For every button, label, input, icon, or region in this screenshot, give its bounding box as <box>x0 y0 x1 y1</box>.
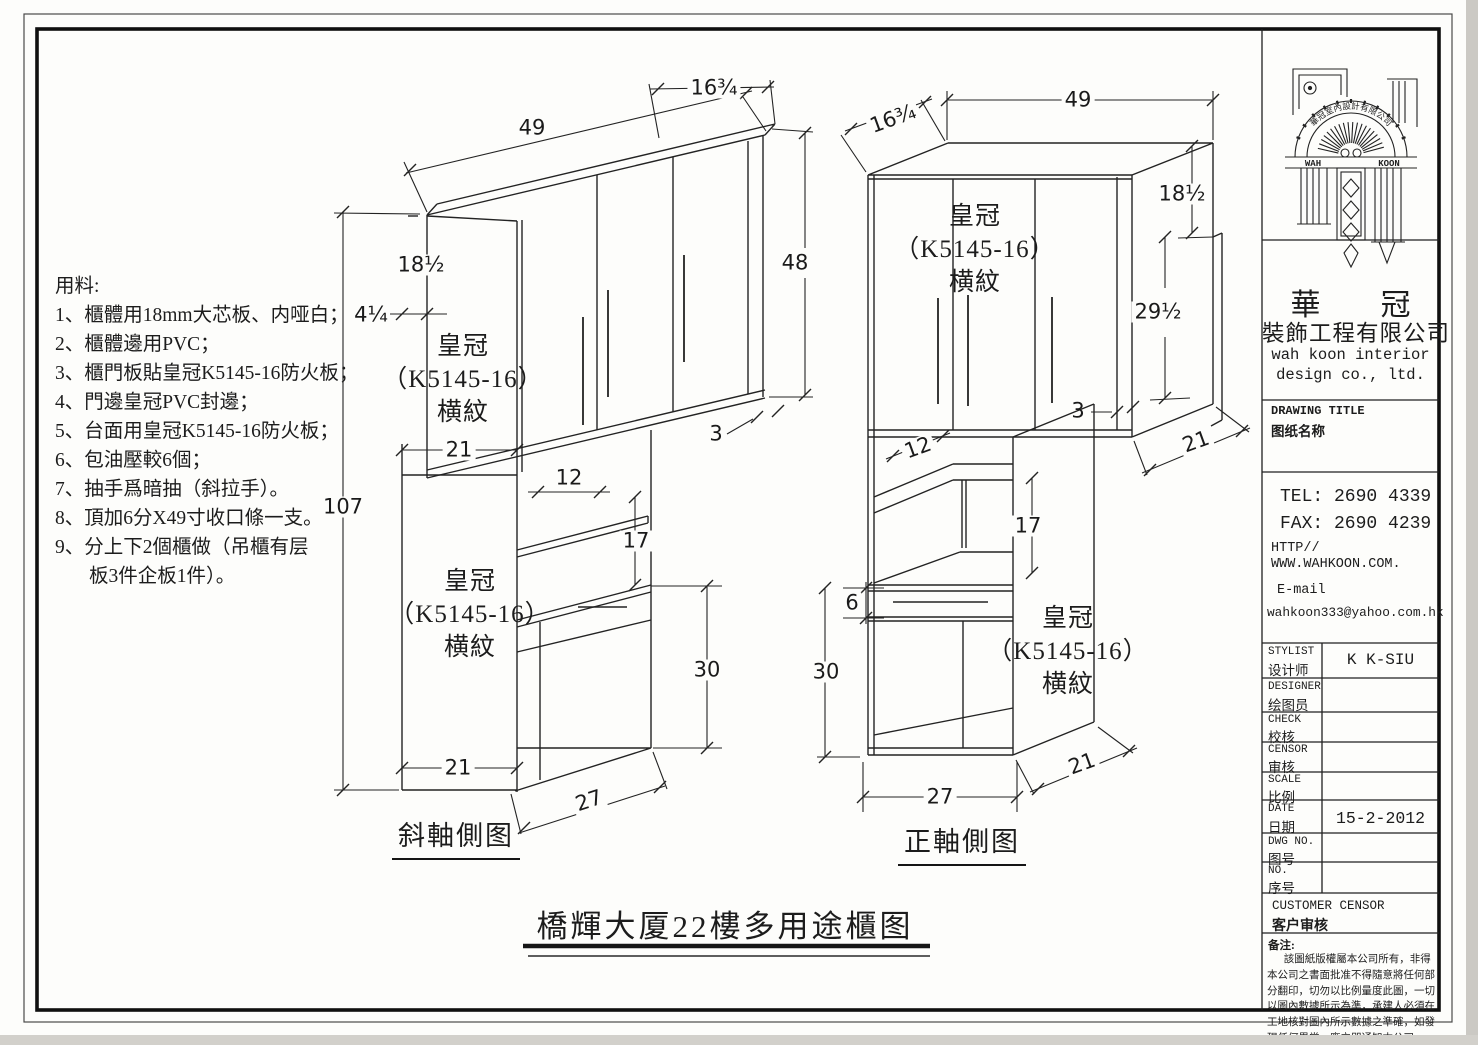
right-view-title: 正軸側图 <box>898 820 1026 866</box>
company-name-en-1: wah koon interior <box>1262 346 1439 364</box>
notes-body: 該圖紙版權屬本公司所有，非得本公司之書面批准不得隨意將任何部分翻印，切勿以比例量… <box>1267 952 1435 1045</box>
materials-item: 7、抽手爲暗抽（斜拉手）。 <box>55 475 358 504</box>
materials-item: 6、包油壓較6個； <box>55 446 358 475</box>
row-label-en: CHECK <box>1268 714 1301 726</box>
panel-label-right-upper: 皇冠 （K5145-16） 横紋 <box>894 200 1055 299</box>
panel-grain: 横紋 <box>894 266 1055 299</box>
row-label-en: DWG NO. <box>1268 836 1314 848</box>
dim-left-width: 49 <box>519 118 546 139</box>
fax-number: FAX: 2690 4239 <box>1280 514 1431 534</box>
materials-item: 9、分上下2個櫃做（吊櫃有层 <box>55 533 358 562</box>
dim-right-upper-step: 18½ <box>1155 184 1208 205</box>
dim-left-shelf-depth: 12 <box>556 468 583 489</box>
logo-koon-text: KOON <box>1378 159 1400 169</box>
logo-door <box>1337 168 1365 267</box>
panel-brand: 皇冠 <box>389 565 550 598</box>
left-view-dimensions <box>334 80 813 834</box>
panel-code: （K5145-16） <box>382 363 543 396</box>
row-label-en: STYLIST <box>1268 646 1314 658</box>
row-label-cn: 绘图员 <box>1268 694 1309 714</box>
dim-left-depth-top: 16¾ <box>687 78 740 99</box>
dim-right-stile: 3 <box>1071 401 1084 422</box>
left-view-title: 斜軸側图 <box>392 814 520 860</box>
drawing-sheet: WAH KOON 華冠室內設計有限公司 <box>0 0 1478 1045</box>
panel-label-left-upper: 皇冠 （K5145-16） 横紋 <box>382 330 543 429</box>
http-label: HTTP// <box>1271 541 1320 556</box>
scan-edge <box>1466 0 1478 1045</box>
dim-left-offset: 4¼ <box>354 305 388 326</box>
sheet-title-underline <box>523 946 930 956</box>
logo-fan-icon <box>1318 122 1384 153</box>
website-url: WWW.WAHKOON.COM. <box>1271 557 1401 572</box>
dim-left-recess-height: 17 <box>620 531 653 552</box>
panel-code: （K5145-16） <box>389 598 550 631</box>
panel-label-left-lower: 皇冠 （K5145-16） 横紋 <box>389 565 550 664</box>
dim-right-recess-height: 17 <box>1012 516 1045 537</box>
materials-item: 板3件企板1件）。 <box>55 562 358 591</box>
logo-arc-text: 華冠室內設計有限公司 <box>1308 101 1394 128</box>
panel-grain: 横紋 <box>987 668 1148 701</box>
materials-item: 5、台面用皇冠K5145-16防火板； <box>55 417 358 446</box>
panel-code: （K5145-16） <box>987 635 1148 668</box>
panel-brand: 皇冠 <box>894 200 1055 233</box>
logo-wah-text: WAH <box>1305 159 1321 169</box>
logo-columns <box>1297 168 1405 263</box>
email-address: wahkoon333@yahoo.com.hk <box>1267 605 1444 620</box>
row-label-en: SCALE <box>1268 774 1301 786</box>
materials-heading: 用料: <box>55 272 358 301</box>
drawing-title-label-en: DRAWING TITLE <box>1271 404 1365 418</box>
materials-list: 用料: 1、櫃體用18mm大芯板、内哑白； 2、櫃體邊用PVC； 3、櫃門板貼皇… <box>55 272 358 591</box>
materials-item: 3、櫃門板貼皇冠K5145-16防火板； <box>55 359 358 388</box>
panel-label-right-lower: 皇冠 （K5145-16） 横紋 <box>987 602 1148 701</box>
company-name-cn-sub: 裝飾工程有限公司 <box>1262 316 1439 348</box>
dim-right-lower-step: 29½ <box>1131 302 1184 323</box>
dim-right-base-height: 30 <box>810 662 843 683</box>
materials-item: 4、門邊皇冠PVC封邊； <box>55 388 358 417</box>
email-label: E-mail <box>1277 583 1326 598</box>
customer-censor-label-en: CUSTOMER CENSOR <box>1272 899 1385 913</box>
dim-left-base-height: 30 <box>691 660 724 681</box>
dim-left-total-height: 107 <box>320 497 366 518</box>
materials-item: 2、櫃體邊用PVC； <box>55 330 358 359</box>
row-label-cn: 审核 <box>1268 756 1295 776</box>
row-label-cn: 序号 <box>1268 877 1295 897</box>
drawing-title-label-cn: 图纸名称 <box>1271 420 1325 440</box>
row-label-en: DESIGNER <box>1268 681 1321 693</box>
panel-grain: 横紋 <box>389 631 550 664</box>
dim-right-drawer-height: 6 <box>842 593 861 614</box>
stylist-value: K K-SIU <box>1322 651 1439 669</box>
dim-left-upper-step: 18½ <box>394 255 447 276</box>
materials-item: 8、頂加6分X49寸收口條一支。 <box>55 504 358 533</box>
row-label-cn: 日期 <box>1268 816 1295 836</box>
dim-left-stile: 3 <box>709 424 722 445</box>
logo-arc-textpath: 華冠室內設計有限公司 <box>1308 101 1394 128</box>
scan-edge <box>0 1035 1478 1045</box>
panel-code: （K5145-16） <box>894 233 1055 266</box>
panel-brand: 皇冠 <box>382 330 543 363</box>
notes-label: 备注: <box>1268 937 1295 953</box>
dim-right-base-width: 27 <box>924 787 957 808</box>
row-label-en: DATE <box>1268 803 1294 815</box>
dim-left-upper-height: 48 <box>779 253 812 274</box>
row-label-cn: 设计师 <box>1268 659 1309 679</box>
customer-censor-label-cn: 客户审核 <box>1272 915 1328 935</box>
dim-right-width: 49 <box>1062 90 1095 111</box>
dim-left-base-depth: 21 <box>442 758 475 779</box>
panel-grain: 横紋 <box>382 396 543 429</box>
row-label-cn: 校核 <box>1268 726 1295 746</box>
date-value: 15-2-2012 <box>1322 809 1439 828</box>
tel-number: TEL: 2690 4339 <box>1280 487 1431 507</box>
row-label-en: NO. <box>1268 865 1288 877</box>
dim-left-side-depth: 21 <box>443 440 476 461</box>
company-name-en-2: design co., ltd. <box>1262 366 1439 384</box>
sheet-main-title: 橋輝大厦22樓多用途櫃图 <box>537 901 914 946</box>
company-logo: WAH KOON 華冠室內設計有限公司 <box>1285 69 1417 267</box>
row-label-en: CENSOR <box>1268 744 1308 756</box>
panel-brand: 皇冠 <box>987 602 1148 635</box>
materials-item: 1、櫃體用18mm大芯板、内哑白； <box>55 301 358 330</box>
